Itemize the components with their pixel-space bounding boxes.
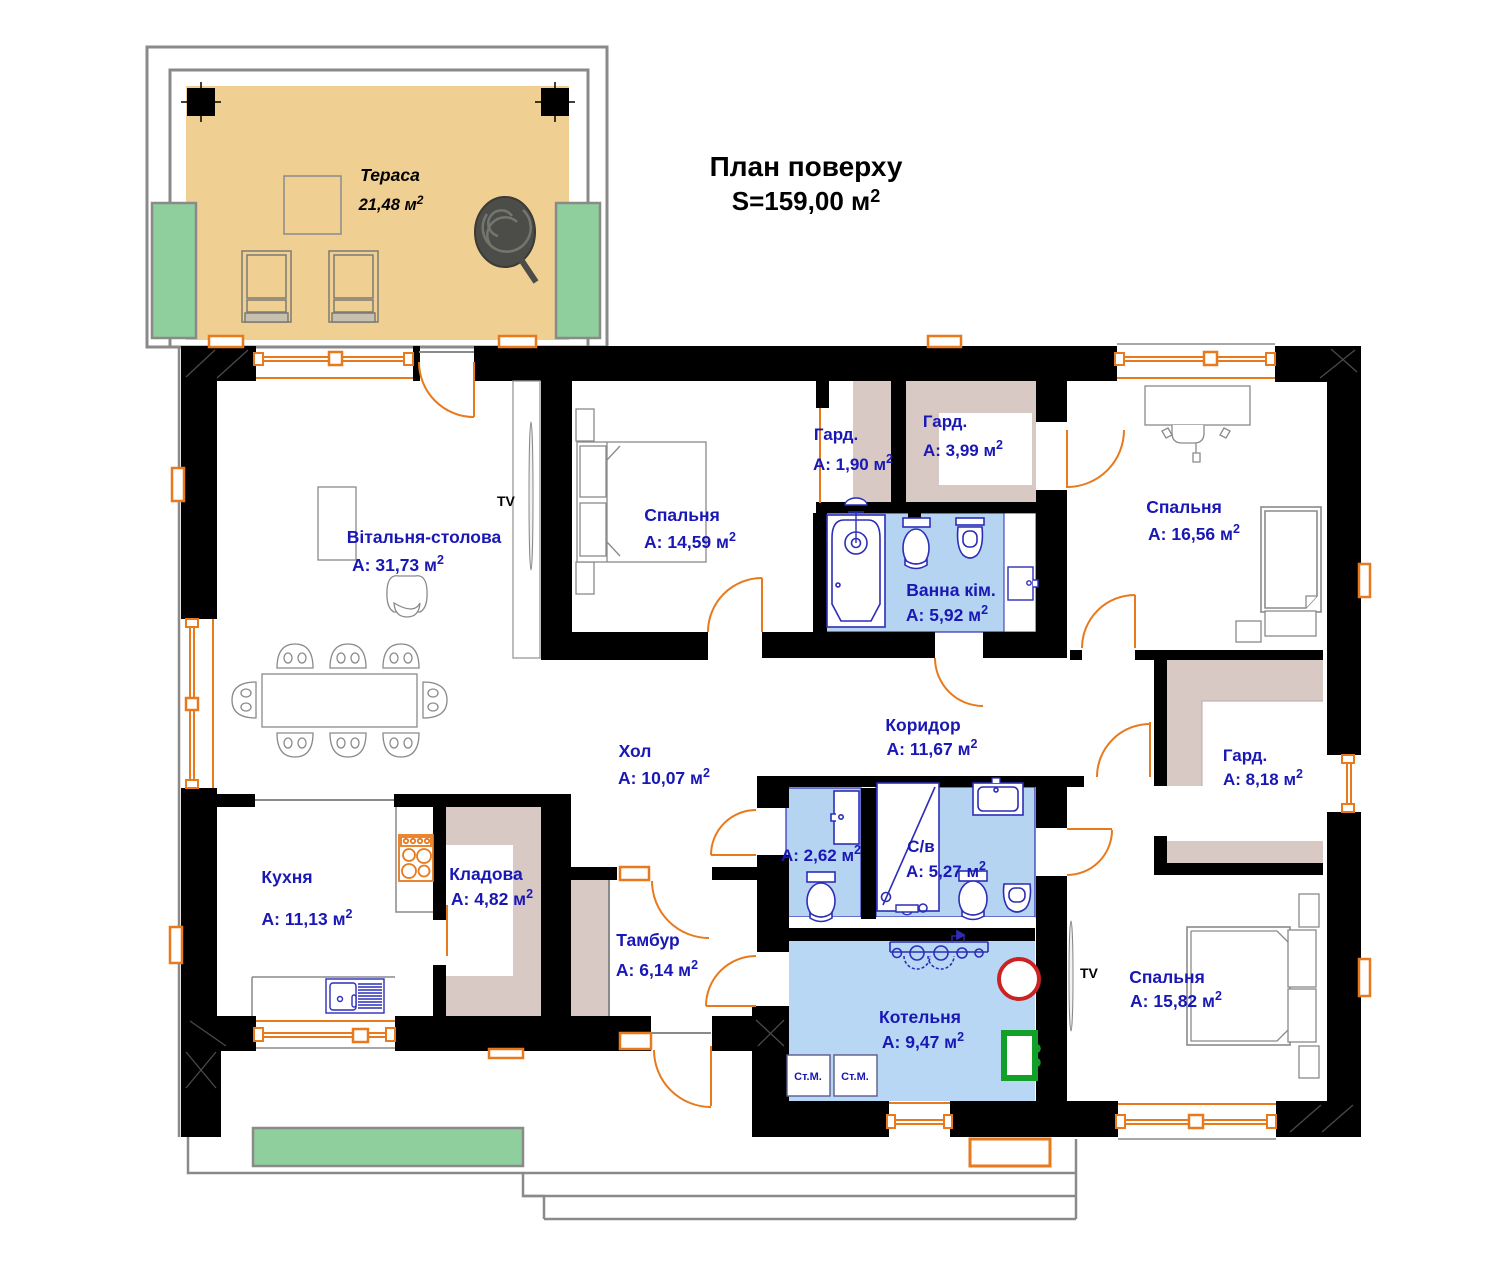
- svg-text:Вітальня-столова: Вітальня-столова: [347, 527, 502, 547]
- svg-text:А: 5,27 м2: А: 5,27 м2: [906, 859, 986, 881]
- svg-text:Гард.: Гард.: [814, 425, 858, 444]
- svg-text:TV: TV: [1080, 965, 1099, 981]
- svg-text:21,48 м2: 21,48 м2: [358, 193, 424, 214]
- svg-text:Спальня: Спальня: [1129, 967, 1205, 987]
- svg-text:Кладова: Кладова: [449, 864, 523, 884]
- svg-text:Тераса: Тераса: [360, 165, 420, 185]
- svg-text:План поверху: План поверху: [710, 151, 903, 182]
- svg-text:А: 9,47 м2: А: 9,47 м2: [882, 1030, 964, 1052]
- svg-text:Котельня: Котельня: [879, 1007, 961, 1027]
- svg-text:А: 2,62 м2: А: 2,62 м2: [781, 843, 861, 865]
- svg-text:Коридор: Коридор: [885, 715, 960, 735]
- svg-text:А: 10,07 м2: А: 10,07 м2: [618, 766, 710, 788]
- svg-text:А: 11,13 м2: А: 11,13 м2: [262, 907, 353, 929]
- svg-text:А: 1,90 м2: А: 1,90 м2: [813, 452, 893, 474]
- svg-text:Спальня: Спальня: [1146, 497, 1222, 517]
- svg-text:TV: TV: [497, 493, 516, 509]
- svg-text:Гард.: Гард.: [923, 412, 967, 431]
- svg-text:Ст.М.: Ст.М.: [794, 1071, 822, 1083]
- svg-text:Спальня: Спальня: [644, 505, 720, 525]
- svg-text:Хол: Хол: [619, 741, 652, 761]
- svg-text:Гард.: Гард.: [1223, 746, 1267, 765]
- svg-text:Тамбур: Тамбур: [616, 930, 679, 950]
- svg-text:А: 15,82 м2: А: 15,82 м2: [1130, 989, 1222, 1011]
- svg-text:А: 8,18 м2: А: 8,18 м2: [1223, 767, 1303, 789]
- svg-text:А: 3,99 м2: А: 3,99 м2: [923, 438, 1003, 460]
- svg-text:А: 16,56 м2: А: 16,56 м2: [1148, 522, 1240, 544]
- svg-text:А: 6,14 м2: А: 6,14 м2: [616, 958, 698, 980]
- svg-text:Кухня: Кухня: [261, 867, 312, 887]
- svg-text:А: 5,92 м2: А: 5,92 м2: [906, 603, 988, 625]
- svg-text:А: 14,59 м2: А: 14,59 м2: [644, 530, 736, 552]
- svg-text:Ванна кім.: Ванна кім.: [906, 580, 996, 600]
- svg-text:А: 11,67 м2: А: 11,67 м2: [887, 737, 978, 759]
- svg-text:А: 4,82 м2: А: 4,82 м2: [451, 887, 533, 909]
- svg-text:S=159,00 м2: S=159,00 м2: [732, 186, 881, 216]
- svg-text:С/в: С/в: [907, 837, 934, 856]
- svg-text:А: 31,73 м2: А: 31,73 м2: [352, 553, 444, 575]
- svg-text:Ст.М.: Ст.М.: [841, 1071, 869, 1083]
